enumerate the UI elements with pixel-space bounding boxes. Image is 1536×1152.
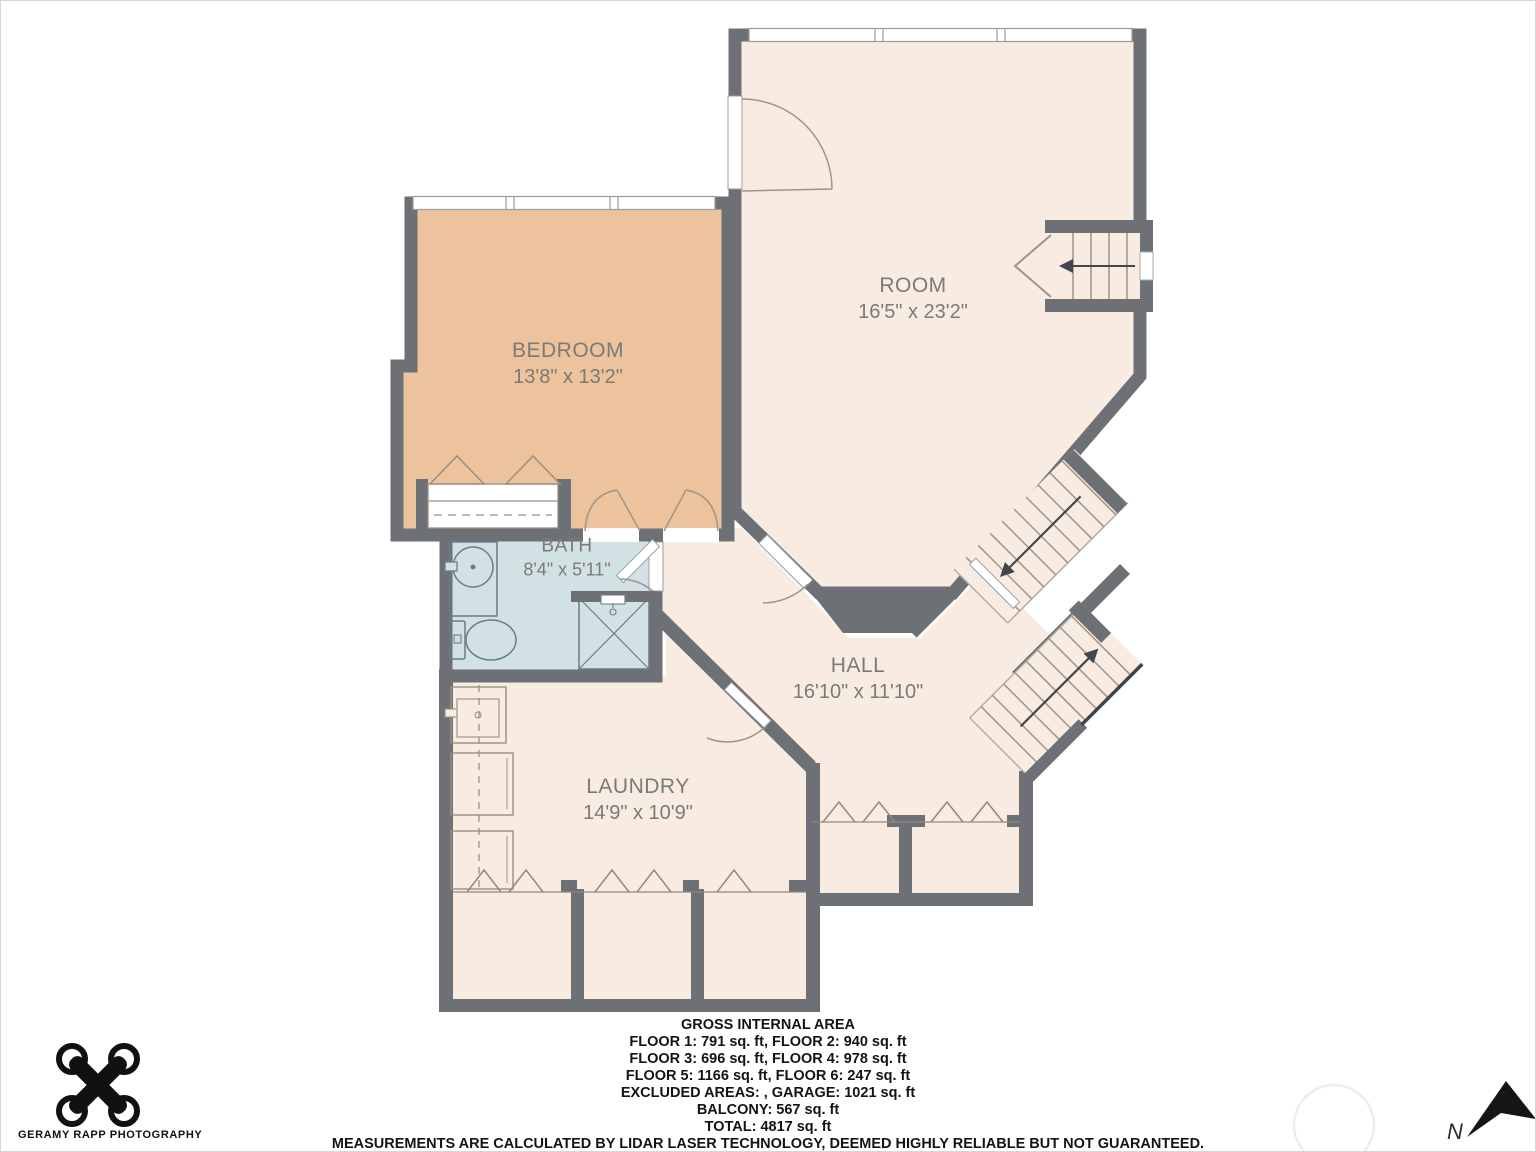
area-line: TOTAL: 4817 sq. ft	[1, 1119, 1535, 1136]
room-label-bedroom: BEDROOM 13'8" x 13'2"	[512, 339, 624, 389]
laundry-closet-floor	[446, 886, 814, 1006]
area-summary: GROSS INTERNAL AREA FLOOR 1: 791 sq. ft,…	[1, 1017, 1535, 1152]
floorplan-page: ROOM 16'5" x 23'2" BEDROOM 13'8" x 13'2"…	[0, 0, 1536, 1152]
room-name: BATH	[523, 536, 610, 558]
area-line: EXCLUDED AREAS: , GARAGE: 1021 sq. ft	[1, 1085, 1535, 1102]
room-dimensions: 14'9" x 10'9"	[583, 802, 693, 825]
room-window	[749, 29, 1132, 42]
area-line: BALCONY: 567 sq. ft	[1, 1102, 1535, 1119]
north-label: N	[1447, 1119, 1463, 1145]
drone-icon	[56, 1043, 140, 1127]
room-label-room: ROOM 16'5" x 23'2"	[858, 274, 968, 324]
dresser-icon	[428, 484, 558, 528]
photographer-name: GERAMY RAPP PHOTOGRAPHY	[18, 1129, 202, 1141]
bedroom-window	[413, 197, 715, 210]
room-dimensions: 16'10" x 11'10"	[793, 681, 923, 704]
room-label-bath: BATH 8'4" x 5'11"	[523, 536, 610, 581]
room-dimensions: 16'5" x 23'2"	[858, 301, 968, 324]
area-line: FLOOR 5: 1166 sq. ft, FLOOR 6: 247 sq. f…	[1, 1068, 1535, 1085]
room-name: ROOM	[858, 274, 968, 298]
floorplan-drawing	[1, 1, 1536, 1152]
area-summary-title: GROSS INTERNAL AREA	[1, 1017, 1535, 1034]
room-dimensions: 13'8" x 13'2"	[512, 366, 624, 389]
area-line: FLOOR 3: 696 sq. ft, FLOOR 4: 978 sq. ft	[1, 1051, 1535, 1068]
disclaimer: MEASUREMENTS ARE CALCULATED BY LIDAR LAS…	[1, 1136, 1535, 1152]
room-name: LAUNDRY	[583, 775, 693, 799]
area-line: FLOOR 1: 791 sq. ft, FLOOR 2: 940 sq. ft	[1, 1034, 1535, 1051]
room-dimensions: 8'4" x 5'11"	[523, 560, 610, 581]
room-label-hall: HALL 16'10" x 11'10"	[793, 654, 923, 704]
room-label-laundry: LAUNDRY 14'9" x 10'9"	[583, 775, 693, 825]
room-name: BEDROOM	[512, 339, 624, 363]
room-name: HALL	[793, 654, 923, 678]
